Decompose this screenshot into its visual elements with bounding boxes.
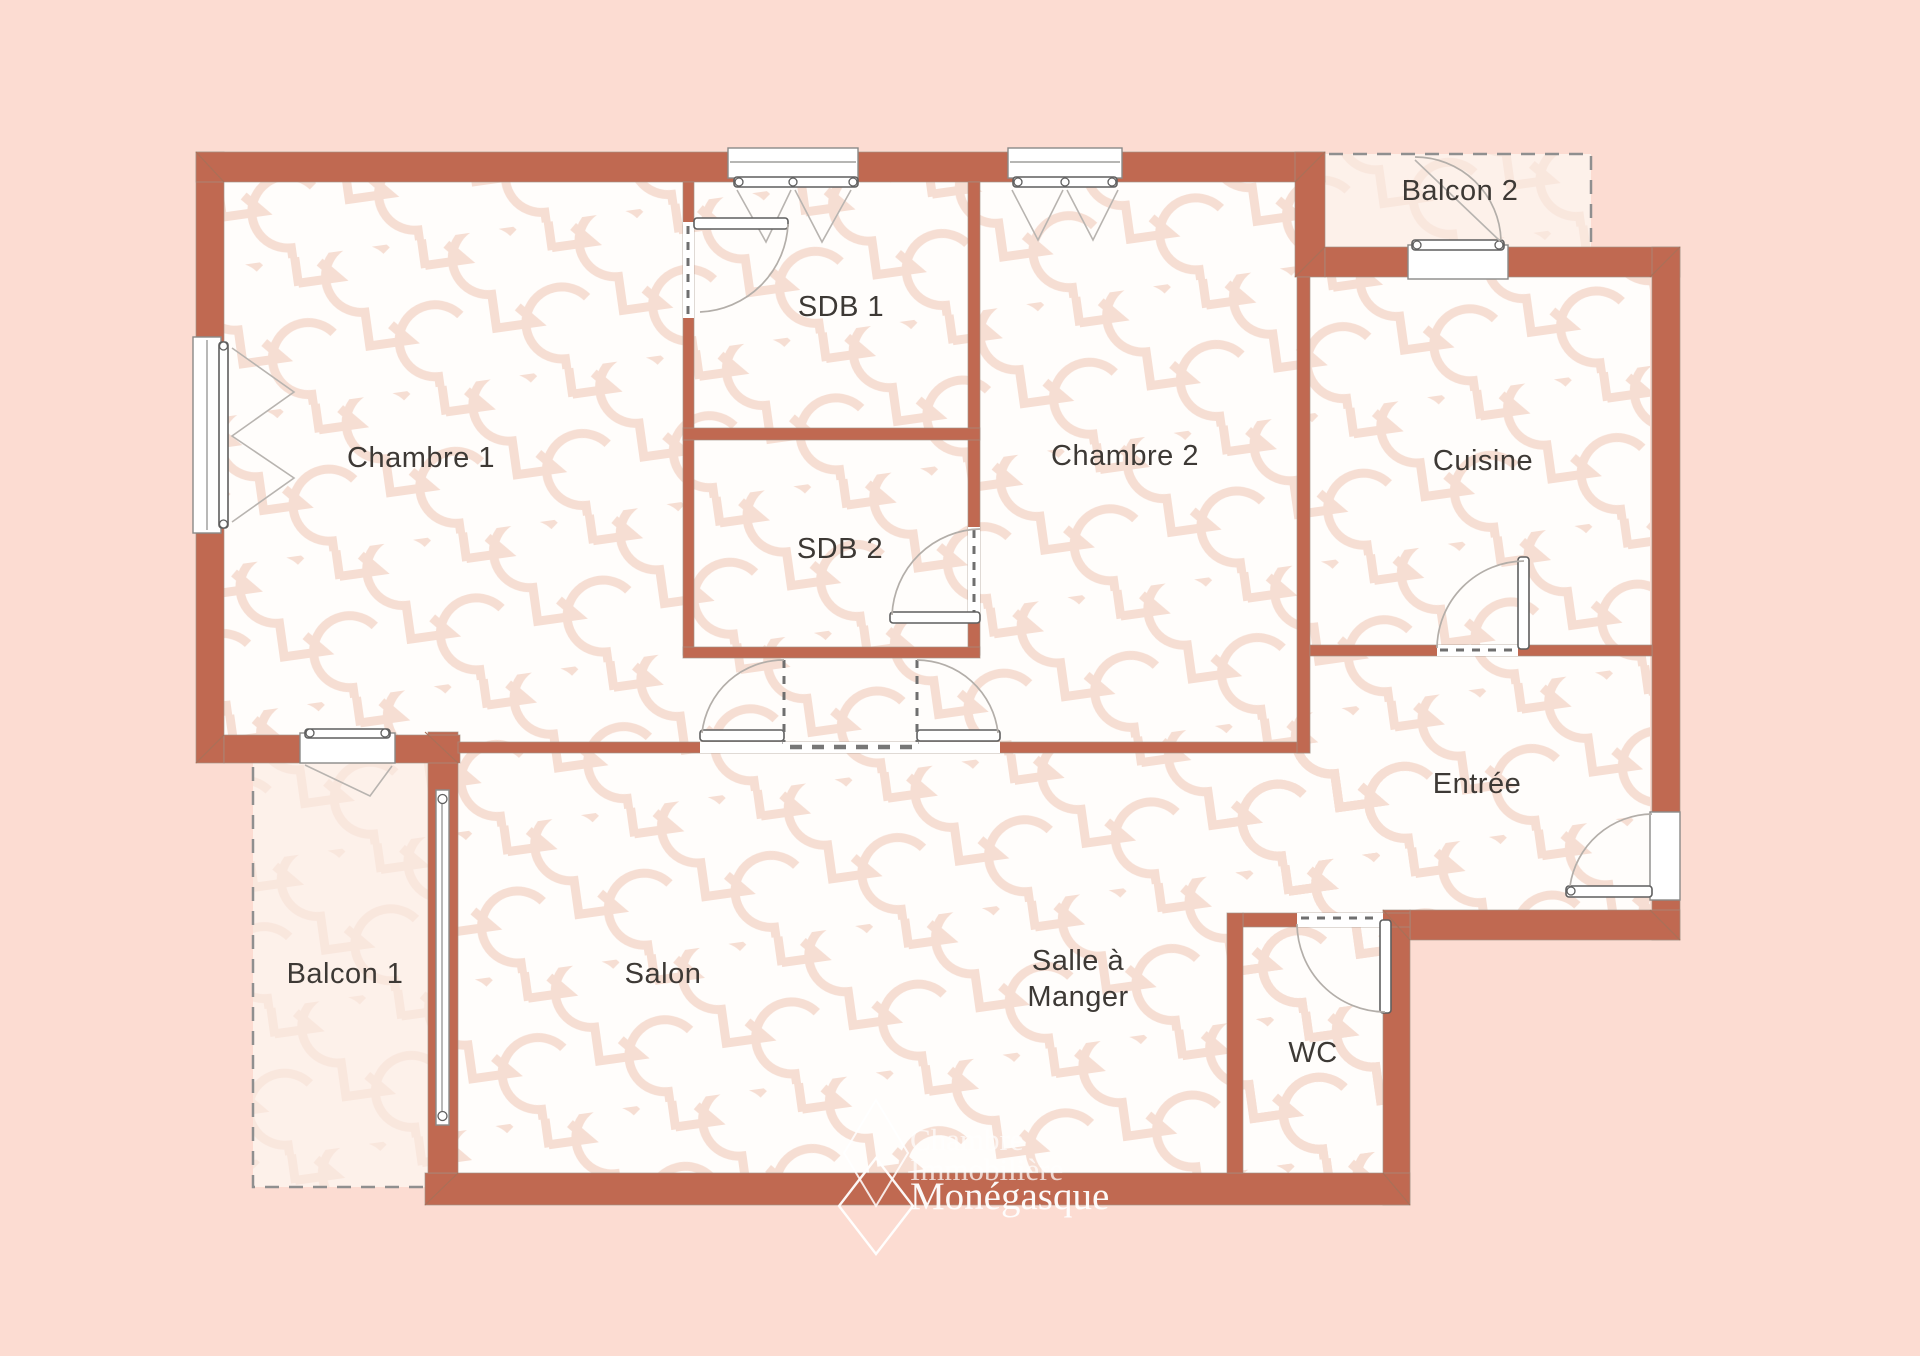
floor-plan: Chambre 1 SDB 1 SDB 2 Chambre 2 Cuisine … — [0, 0, 1920, 1356]
room-label-chambre1: Chambre 1 — [347, 442, 495, 474]
wall-wc-left — [1227, 913, 1243, 1173]
room-label-salle-a-manger-2: Manger — [1027, 981, 1128, 1013]
room-label-chambre2: Chambre 2 — [1051, 440, 1199, 472]
wall-sdb2-bottom — [683, 647, 980, 658]
wall-chambre2-right — [1297, 277, 1310, 753]
room-label-cuisine: Cuisine — [1433, 445, 1533, 477]
wall-entree-bottom — [1410, 910, 1680, 940]
corridor-open-passage — [783, 742, 918, 753]
room-label-salle-a-manger-1: Salle à — [1032, 945, 1125, 977]
room-label-wc: WC — [1288, 1037, 1337, 1069]
wall-step-balcon2 — [1295, 152, 1325, 277]
room-label-salon: Salon — [625, 958, 702, 990]
wall-sdb-divider — [683, 428, 980, 440]
window-salon-balcon1-sliding — [436, 790, 449, 1125]
watermark-line3: Monégasque — [910, 1175, 1109, 1218]
room-label-entree: Entrée — [1433, 768, 1521, 800]
floor-plan-page: Chambre 1 SDB 1 SDB 2 Chambre 2 Cuisine … — [0, 0, 1920, 1356]
room-label-balcon1: Balcon 1 — [287, 958, 404, 990]
room-label-sdb1: SDB 1 — [798, 291, 884, 323]
room-label-balcon2: Balcon 2 — [1402, 175, 1519, 207]
room-label-sdb2: SDB 2 — [797, 533, 883, 565]
